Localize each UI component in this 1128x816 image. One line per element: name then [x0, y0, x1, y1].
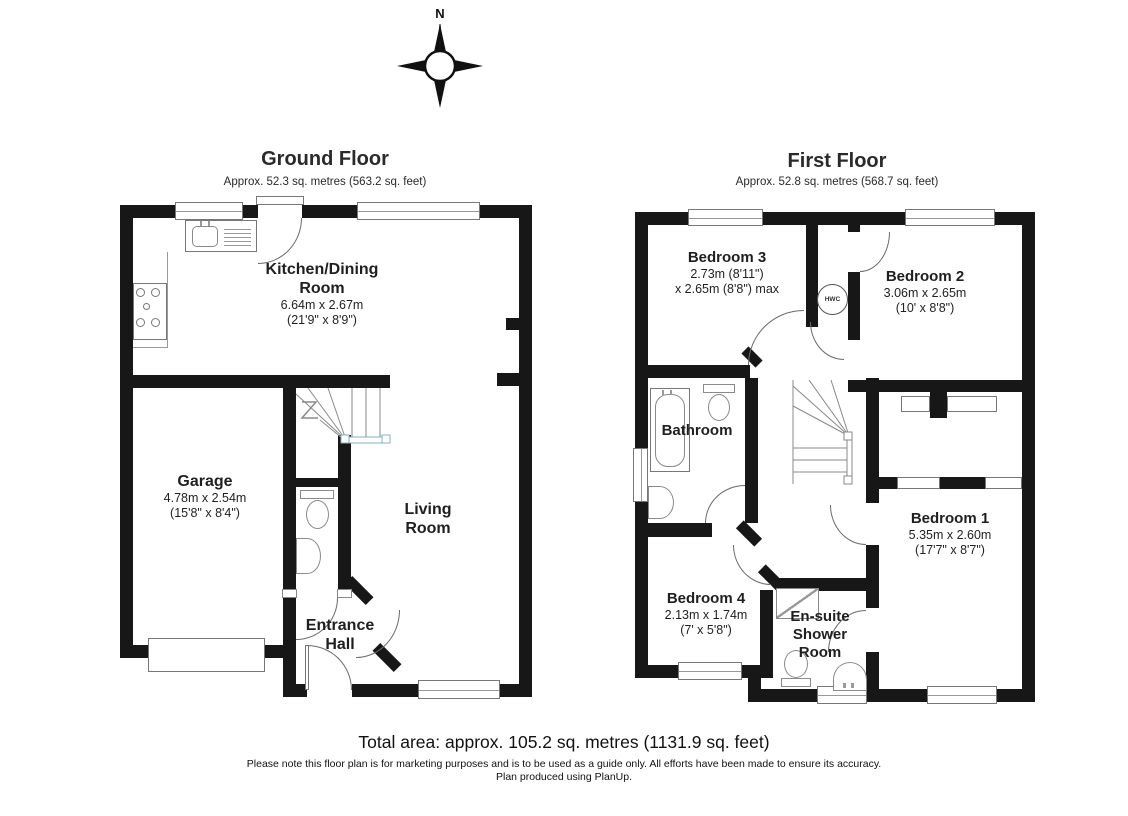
- wall-opening: [897, 477, 940, 489]
- room-label-hall: Entrance Hall: [285, 616, 395, 654]
- first-floor-subtitle: Approx. 52.8 sq. metres (568.7 sq. feet): [712, 176, 962, 188]
- room-dims: 5.35m x 2.60m: [876, 528, 1024, 543]
- window: [678, 662, 742, 680]
- tap-icon: [200, 221, 202, 226]
- room-dims: 2.13m x 1.74m: [640, 608, 772, 623]
- wall: [120, 375, 390, 388]
- burner-icon: [151, 318, 160, 327]
- room-dims: (15'8" x 8'4"): [130, 506, 280, 521]
- burner-icon: [136, 288, 145, 297]
- room-dims: (7' x 5'8"): [640, 623, 772, 638]
- burner-icon: [143, 303, 150, 310]
- room-label-living: Living Room: [380, 500, 476, 538]
- compass-rose-icon: [393, 20, 487, 112]
- wardrobe: [901, 396, 930, 412]
- door-arc: [705, 485, 745, 523]
- wall: [940, 477, 985, 489]
- room-name: Bathroom: [647, 422, 747, 440]
- wall: [1022, 212, 1035, 702]
- room-name: Kitchen/Dining: [222, 260, 422, 279]
- ground-floor-title: Ground Floor: [200, 148, 450, 171]
- door-jamb: [282, 589, 297, 598]
- room-name: Room: [222, 279, 422, 298]
- total-area-text: Total area: approx. 105.2 sq. metres (11…: [0, 732, 1128, 753]
- room-label-bedroom2: Bedroom 2 3.06m x 2.65m (10' x 8'8"): [850, 268, 1000, 316]
- wall: [519, 205, 532, 697]
- room-dims: (21'9" x 8'9"): [222, 313, 422, 328]
- tap-icon: [670, 390, 672, 395]
- room-name: Room: [380, 519, 476, 538]
- room-name: Entrance: [285, 616, 395, 635]
- wall: [640, 365, 750, 378]
- room-dims: 4.78m x 2.54m: [130, 491, 280, 506]
- burner-icon: [151, 288, 160, 297]
- hot-water-cylinder: HWC: [817, 284, 848, 315]
- window: [927, 686, 997, 704]
- basin: [648, 486, 674, 519]
- room-name: Bedroom 4: [640, 590, 772, 608]
- tap-icon: [851, 683, 854, 688]
- garage-door: [148, 638, 265, 672]
- wall: [736, 520, 762, 546]
- room-label-ensuite: En-suite Shower Room: [763, 608, 877, 662]
- tap-icon: [208, 221, 210, 226]
- room-label-bedroom4: Bedroom 4 2.13m x 1.74m (7' x 5'8"): [640, 590, 772, 638]
- toilet-bowl: [708, 394, 730, 421]
- room-label-garage: Garage 4.78m x 2.54m (15'8" x 8'4"): [130, 472, 280, 521]
- room-name: Garage: [130, 472, 280, 491]
- room-name: Hall: [285, 635, 395, 654]
- stairs-first: [793, 380, 869, 484]
- room-label-bedroom1: Bedroom 1 5.35m x 2.60m (17'7" x 8'7"): [876, 510, 1024, 558]
- chimney-breast: [506, 318, 519, 330]
- window: [905, 209, 995, 226]
- wall: [848, 225, 860, 232]
- counter-edge: [167, 252, 168, 348]
- door-jamb: [337, 589, 352, 598]
- wall-opening: [985, 477, 1022, 489]
- floorplan-canvas: N Ground Floor Approx. 52.3 sq. metres (…: [0, 0, 1128, 816]
- door-canopy: [256, 196, 304, 205]
- drainer-icon: [224, 226, 251, 247]
- room-label-bathroom: Bathroom: [647, 422, 747, 440]
- burner-icon: [136, 318, 145, 327]
- toilet-cistern: [703, 384, 735, 393]
- door-arc: [748, 310, 804, 365]
- room-name: Bedroom 2: [850, 268, 1000, 286]
- room-name: Room: [763, 644, 877, 662]
- room-label-bedroom3: Bedroom 3 2.73m (8'11") x 2.65m (8'8") m…: [647, 249, 807, 297]
- door-arc: [810, 322, 844, 360]
- wall: [745, 378, 758, 523]
- toilet-cistern: [781, 678, 811, 687]
- room-name: En-suite: [763, 608, 877, 626]
- basin: [296, 538, 321, 574]
- room-dims: x 2.65m (8'8") max: [647, 282, 807, 297]
- disclaimer-text: Please note this floor plan is for marke…: [0, 758, 1128, 770]
- room-label-kitchen: Kitchen/Dining Room 6.64m x 2.67m (21'9"…: [222, 260, 422, 328]
- door-gap: [258, 205, 302, 218]
- room-dims: 6.64m x 2.67m: [222, 298, 422, 313]
- room-name: Bedroom 1: [876, 510, 1024, 528]
- wall: [120, 205, 133, 658]
- hwc-label: HWC: [825, 296, 841, 303]
- toilet-bowl: [306, 500, 329, 529]
- counter-edge: [133, 347, 167, 348]
- room-dims: 2.73m (8'11"): [647, 267, 807, 282]
- room-dims: (10' x 8'8"): [850, 301, 1000, 316]
- tap-icon: [662, 390, 664, 395]
- door-arc: [830, 505, 866, 545]
- produced-by-text: Plan produced using PlanUp.: [0, 771, 1128, 783]
- wall: [338, 435, 351, 598]
- room-name: Shower: [763, 626, 877, 644]
- wall: [640, 523, 712, 537]
- compass-north-label: N: [426, 6, 454, 21]
- room-dims: (17'7" x 8'7"): [876, 543, 1024, 558]
- wall: [879, 477, 897, 489]
- window: [633, 448, 648, 502]
- sink-bowl: [192, 226, 218, 247]
- door-arc: [258, 218, 302, 264]
- stairs-ground: [294, 388, 392, 446]
- wall: [866, 578, 879, 608]
- basin: [833, 662, 867, 691]
- wall: [283, 478, 351, 487]
- wall: [497, 373, 532, 386]
- first-floor-title: First Floor: [712, 150, 962, 173]
- room-name: Bedroom 3: [647, 249, 807, 267]
- window: [357, 202, 480, 220]
- room-dims: 3.06m x 2.65m: [850, 286, 1000, 301]
- ground-floor-subtitle: Approx. 52.3 sq. metres (563.2 sq. feet): [200, 176, 450, 188]
- tap-icon: [843, 683, 846, 688]
- door-arc: [860, 232, 890, 272]
- wall: [806, 225, 818, 318]
- door-arc: [733, 545, 771, 585]
- toilet-cistern: [300, 490, 334, 499]
- window: [175, 202, 243, 220]
- room-name: Living: [380, 500, 476, 519]
- chimney-breast: [930, 392, 947, 418]
- window: [418, 680, 500, 699]
- wardrobe: [947, 396, 997, 412]
- window: [688, 209, 763, 226]
